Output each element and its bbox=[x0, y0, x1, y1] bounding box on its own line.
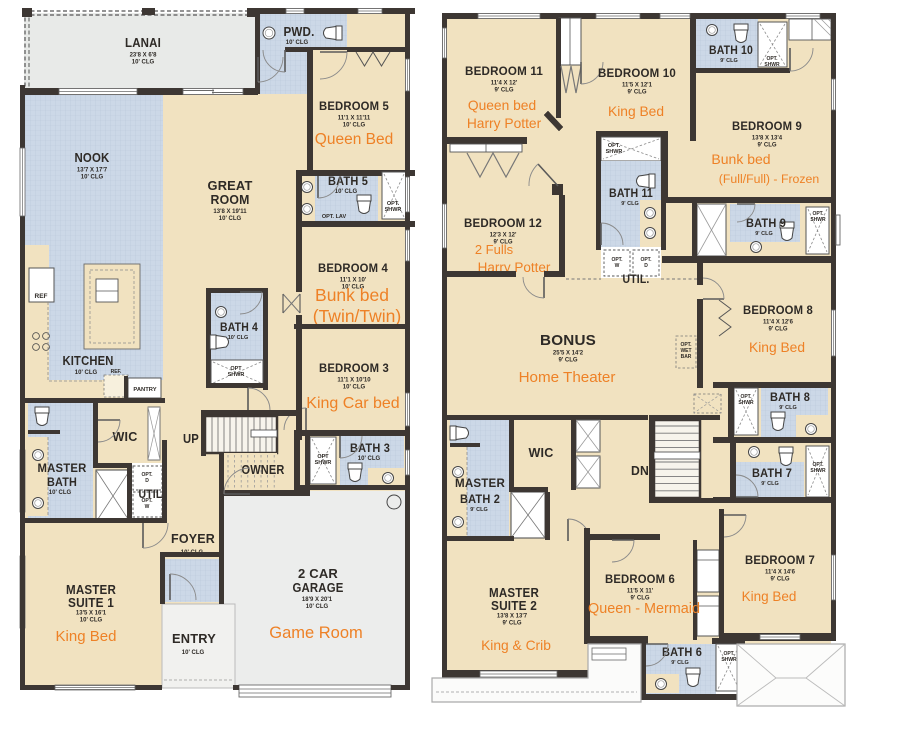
svg-text:DN: DN bbox=[631, 464, 649, 478]
svg-text:BATH 11: BATH 11 bbox=[609, 186, 653, 200]
svg-text:King Bed: King Bed bbox=[56, 628, 117, 645]
svg-text:Queen - Mermaid: Queen - Mermaid bbox=[588, 601, 700, 617]
svg-text:12'3 X 12': 12'3 X 12' bbox=[490, 233, 517, 239]
svg-text:LANAI: LANAI bbox=[125, 35, 161, 50]
svg-text:9' CLG: 9' CLG bbox=[768, 327, 787, 333]
svg-text:FOYER: FOYER bbox=[171, 532, 215, 546]
svg-text:Queen bed: Queen bed bbox=[468, 98, 536, 113]
svg-text:11'5 X 11': 11'5 X 11' bbox=[627, 589, 654, 595]
svg-text:9' CLG: 9' CLG bbox=[755, 231, 773, 237]
svg-text:11'4 X 12': 11'4 X 12' bbox=[491, 81, 518, 87]
svg-text:10' CLG: 10' CLG bbox=[182, 650, 205, 656]
svg-text:MASTER: MASTER bbox=[455, 476, 505, 490]
svg-text:SHWR: SHWR bbox=[315, 460, 332, 466]
svg-text:11'5 X 12'1: 11'5 X 12'1 bbox=[622, 83, 653, 89]
svg-text:23'8 X 6'8: 23'8 X 6'8 bbox=[130, 53, 158, 59]
svg-text:10' CLG: 10' CLG bbox=[81, 175, 104, 181]
svg-text:UTIL.: UTIL. bbox=[139, 487, 166, 501]
svg-text:9' CLG: 9' CLG bbox=[779, 405, 797, 411]
svg-text:BONUS: BONUS bbox=[540, 332, 596, 349]
svg-text:18'9 X 20'1: 18'9 X 20'1 bbox=[302, 597, 333, 603]
svg-text:13'8 X 13'4: 13'8 X 13'4 bbox=[752, 136, 783, 142]
svg-text:Home Theater: Home Theater bbox=[519, 369, 616, 386]
svg-text:BATH 9: BATH 9 bbox=[746, 216, 786, 230]
svg-text:9' CLG: 9' CLG bbox=[720, 58, 738, 64]
svg-text:BATH 4: BATH 4 bbox=[220, 322, 258, 334]
svg-text:13'8 X 13'7: 13'8 X 13'7 bbox=[497, 614, 528, 620]
svg-text:(Twin/Twin): (Twin/Twin) bbox=[313, 306, 401, 326]
svg-text:King Bed: King Bed bbox=[742, 589, 797, 604]
svg-text:King Bed: King Bed bbox=[749, 340, 805, 355]
svg-text:NOOK: NOOK bbox=[75, 150, 110, 165]
svg-text:10' CLG: 10' CLG bbox=[80, 618, 103, 624]
svg-text:W: W bbox=[615, 263, 620, 269]
svg-text:BATH: BATH bbox=[47, 475, 77, 489]
svg-text:9' CLG: 9' CLG bbox=[621, 201, 639, 207]
svg-text:SHWR: SHWR bbox=[228, 372, 245, 378]
svg-text:Bunk bed: Bunk bed bbox=[315, 285, 389, 305]
svg-text:BEDROOM 11: BEDROOM 11 bbox=[465, 64, 543, 78]
svg-text:ENTRY: ENTRY bbox=[172, 632, 216, 646]
svg-text:2 CAR: 2 CAR bbox=[298, 566, 338, 581]
svg-text:9' CLG: 9' CLG bbox=[470, 507, 488, 513]
svg-text:13'8 X 19'11: 13'8 X 19'11 bbox=[213, 209, 247, 215]
svg-text:9' CLG: 9' CLG bbox=[502, 621, 521, 627]
svg-text:BEDROOM 8: BEDROOM 8 bbox=[743, 303, 813, 317]
svg-text:King Bed: King Bed bbox=[608, 104, 664, 119]
svg-text:10' CLG: 10' CLG bbox=[335, 189, 358, 195]
svg-text:BEDROOM 3: BEDROOM 3 bbox=[319, 361, 389, 375]
svg-text:9' CLG: 9' CLG bbox=[494, 88, 513, 94]
svg-text:GARAGE: GARAGE bbox=[293, 580, 344, 595]
svg-text:11'1 X 11'11: 11'1 X 11'11 bbox=[338, 116, 371, 122]
svg-text:ROOM: ROOM bbox=[211, 192, 250, 207]
svg-text:BEDROOM 9: BEDROOM 9 bbox=[732, 119, 802, 133]
svg-text:9' CLG: 9' CLG bbox=[671, 660, 689, 666]
svg-text:10' CLG: 10' CLG bbox=[343, 385, 366, 391]
svg-text:SHWR: SHWR bbox=[810, 217, 826, 223]
svg-text:SHWR: SHWR bbox=[385, 207, 402, 213]
svg-text:11'1 X 10'10: 11'1 X 10'10 bbox=[337, 378, 371, 384]
svg-text:10' CLG: 10' CLG bbox=[343, 123, 366, 129]
svg-text:9' CLG: 9' CLG bbox=[770, 577, 789, 583]
svg-text:W: W bbox=[145, 504, 150, 510]
svg-text:BEDROOM 5: BEDROOM 5 bbox=[319, 99, 389, 113]
svg-text:BEDROOM 7: BEDROOM 7 bbox=[745, 553, 815, 567]
svg-text:SHWR: SHWR bbox=[738, 400, 754, 406]
svg-text:10' CLG: 10' CLG bbox=[49, 490, 72, 496]
svg-text:BEDROOM 12: BEDROOM 12 bbox=[464, 216, 542, 230]
svg-text:10' CLG: 10' CLG bbox=[132, 60, 155, 66]
svg-text:13'5 X 16'1: 13'5 X 16'1 bbox=[76, 611, 107, 617]
svg-text:10' CLG: 10' CLG bbox=[286, 40, 309, 46]
svg-text:Game Room: Game Room bbox=[269, 624, 363, 642]
svg-text:PANTRY: PANTRY bbox=[133, 387, 156, 393]
svg-text:25'5 X 14'2: 25'5 X 14'2 bbox=[553, 351, 584, 357]
svg-text:GREAT: GREAT bbox=[208, 178, 253, 193]
svg-text:11'4 X 14'6: 11'4 X 14'6 bbox=[765, 570, 796, 576]
svg-text:BATH 2: BATH 2 bbox=[460, 492, 500, 506]
svg-text:Harry Potter: Harry Potter bbox=[467, 116, 542, 131]
svg-text:KITCHEN: KITCHEN bbox=[63, 353, 114, 368]
svg-text:King Car bed: King Car bed bbox=[306, 395, 399, 412]
svg-text:11'4 X 12'6: 11'4 X 12'6 bbox=[763, 320, 794, 326]
svg-text:D: D bbox=[145, 478, 149, 484]
svg-text:10' CLG: 10' CLG bbox=[228, 335, 249, 341]
svg-text:MASTER: MASTER bbox=[38, 461, 87, 475]
svg-text:11'1 X 10': 11'1 X 10' bbox=[340, 278, 367, 284]
svg-text:UP: UP bbox=[183, 432, 199, 446]
svg-text:REF.: REF. bbox=[111, 369, 122, 375]
svg-text:10' CLG: 10' CLG bbox=[75, 370, 98, 376]
svg-text:OWNER: OWNER bbox=[242, 463, 285, 477]
svg-text:9' CLG: 9' CLG bbox=[757, 143, 776, 149]
svg-text:13'7 X 17'7: 13'7 X 17'7 bbox=[77, 168, 108, 174]
svg-text:D: D bbox=[644, 263, 648, 269]
svg-text:9' CLG: 9' CLG bbox=[627, 90, 646, 96]
svg-text:SHWR: SHWR bbox=[764, 62, 780, 68]
svg-text:9' CLG: 9' CLG bbox=[558, 358, 577, 364]
svg-text:(Full/Full) - Frozen: (Full/Full) - Frozen bbox=[719, 172, 820, 186]
svg-text:BATH 5: BATH 5 bbox=[328, 174, 368, 188]
svg-text:Queen Bed: Queen Bed bbox=[315, 131, 393, 148]
svg-text:OPT. LAV: OPT. LAV bbox=[322, 214, 347, 220]
svg-text:SHWR: SHWR bbox=[810, 468, 826, 474]
svg-text:BATH 3: BATH 3 bbox=[350, 441, 390, 455]
svg-text:BEDROOM 10: BEDROOM 10 bbox=[598, 66, 676, 80]
svg-text:SHWR: SHWR bbox=[721, 657, 737, 663]
svg-text:BATH 10: BATH 10 bbox=[709, 43, 753, 57]
svg-text:WIC: WIC bbox=[529, 446, 554, 460]
svg-text:10' CLG: 10' CLG bbox=[358, 456, 381, 462]
svg-text:UTIL.: UTIL. bbox=[623, 272, 650, 286]
svg-text:10' CLG: 10' CLG bbox=[219, 216, 242, 222]
svg-text:BAR: BAR bbox=[681, 354, 692, 360]
svg-text:Bunk bed: Bunk bed bbox=[711, 151, 770, 167]
svg-text:BEDROOM 4: BEDROOM 4 bbox=[318, 261, 388, 275]
svg-text:King & Crib: King & Crib bbox=[481, 638, 551, 653]
svg-text:BATH 7: BATH 7 bbox=[752, 466, 792, 480]
svg-text:PWD.: PWD. bbox=[284, 25, 315, 39]
svg-text:9' CLG: 9' CLG bbox=[761, 481, 779, 487]
svg-text:BEDROOM 6: BEDROOM 6 bbox=[605, 572, 675, 586]
svg-text:REF: REF bbox=[35, 293, 48, 300]
svg-text:2 Fulls: 2 Fulls bbox=[475, 242, 514, 257]
svg-text:SHWR: SHWR bbox=[606, 149, 623, 155]
svg-text:SUITE 1: SUITE 1 bbox=[68, 595, 114, 610]
svg-text:BATH 8: BATH 8 bbox=[770, 390, 810, 404]
svg-text:10' CLG: 10' CLG bbox=[306, 604, 329, 610]
svg-text:SUITE 2: SUITE 2 bbox=[491, 598, 537, 613]
